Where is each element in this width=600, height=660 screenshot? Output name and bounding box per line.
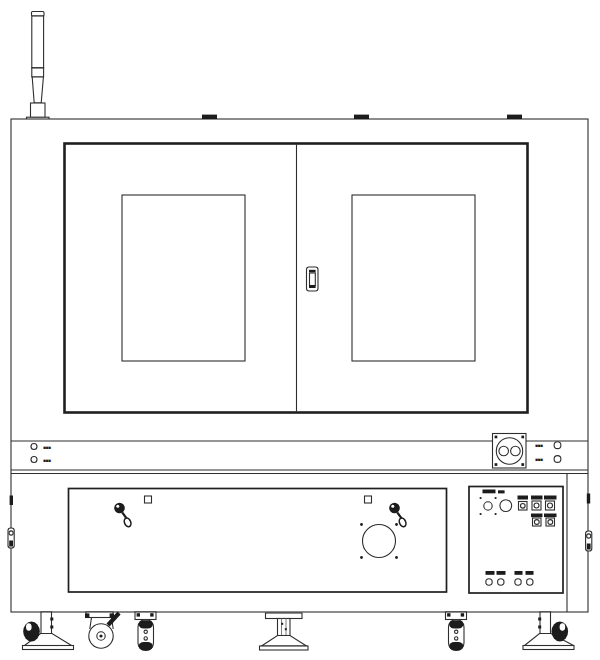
panel-label-bar — [531, 514, 543, 518]
indicator-label: ▪▪▪ — [43, 458, 51, 463]
indicator-label: ▪▪▪ — [535, 457, 543, 462]
hinge-tick-icon — [10, 496, 13, 506]
screw-icon — [495, 436, 498, 439]
signal-tower-taper — [32, 77, 43, 103]
screw-icon — [495, 497, 497, 499]
screw-icon — [395, 556, 398, 559]
undercarriage — [23, 612, 575, 651]
screw-icon — [480, 497, 482, 499]
leveling-foot-left — [23, 612, 74, 650]
foot-pad — [262, 636, 307, 647]
swivel-caster — [85, 612, 121, 649]
drawing-canvas: ▪▪▪ ▪▪▪ ▪▪▪ ▪▪▪ — [0, 0, 600, 660]
drawer-front — [69, 489, 447, 593]
caster-wheel-icon — [552, 622, 569, 642]
screw-icon — [521, 463, 524, 466]
fixed-caster-left — [135, 612, 156, 651]
hinge-tick-icon — [587, 494, 590, 504]
control-panel-plate — [469, 487, 563, 594]
panel-label-bar — [486, 571, 495, 575]
leveling-foot-right — [523, 612, 574, 650]
panel-label-bar — [498, 490, 505, 493]
latch-left-icon — [8, 528, 14, 548]
leveling-foot-center — [260, 613, 309, 650]
signal-tower-body — [32, 16, 44, 68]
panel-label-bar — [515, 571, 523, 575]
drawer-panel — [69, 489, 447, 593]
top-tab-icon — [507, 115, 522, 119]
panel-label-bar — [526, 571, 534, 575]
panel-label-bar — [518, 496, 529, 500]
panel-label-bar — [497, 571, 506, 575]
indicator-label: ▪▪▪ — [43, 445, 51, 450]
indicator-label: ▪▪▪ — [535, 443, 543, 448]
signal-tower — [27, 12, 50, 120]
door-assembly — [65, 144, 528, 413]
latch-right-icon — [586, 531, 592, 551]
top-tabs — [202, 115, 522, 119]
signal-tower-cap — [32, 12, 45, 17]
power-socket — [493, 434, 527, 469]
screw-icon — [521, 436, 524, 439]
screw-icon — [480, 513, 482, 515]
screw-icon — [360, 523, 363, 526]
screw-icon — [495, 513, 497, 515]
socket-plate — [493, 434, 527, 469]
panel-label-bar — [544, 514, 557, 518]
signal-tower-base — [31, 103, 46, 118]
fixed-caster-right — [446, 612, 467, 651]
caster-wheel-icon — [23, 622, 40, 642]
screw-icon — [360, 556, 363, 559]
base-section — [11, 474, 588, 613]
screw-icon — [395, 523, 398, 526]
panel-label-bar — [483, 490, 496, 494]
control-panel — [469, 487, 563, 594]
machine-front-elevation: ▪▪▪ ▪▪▪ ▪▪▪ ▪▪▪ — [0, 0, 600, 660]
top-tab-icon — [202, 115, 217, 119]
panel-label-bar — [544, 496, 557, 500]
screw-icon — [495, 463, 498, 466]
top-tab-icon — [354, 115, 369, 119]
panel-label-bar — [531, 496, 543, 500]
